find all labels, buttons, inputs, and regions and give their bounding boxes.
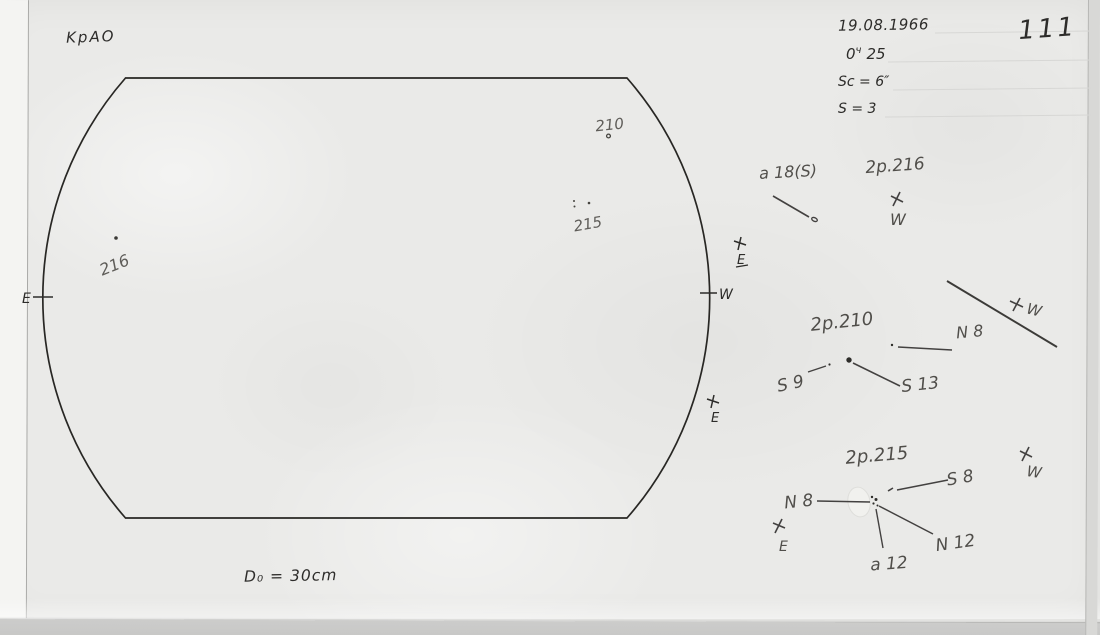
solar-drawing: KpAO 19.08.1966 0ч25 Sc = 6″ S = 3 111 E… — [0, 0, 1100, 635]
spot-group-216-label: 216 — [97, 250, 132, 279]
scanned-observation-sheet: KpAO 19.08.1966 0ч25 Sc = 6″ S = 3 111 E… — [0, 0, 1100, 635]
sketch-215-north-a-label: N 8 — [783, 491, 814, 514]
sketch-group-216: a 18(S) 2p.216 W — [759, 154, 926, 229]
sketch-group-215: 2p.215 S 8 W N 8 N 12 a 12 — [773, 443, 1044, 576]
aperture-label: D₀ = 30cm — [244, 566, 338, 586]
sketch-210-tiny-spot — [828, 363, 830, 365]
pointer-line — [876, 509, 883, 548]
sketch-215-east-label: E — [779, 539, 788, 555]
sketch-210-south-b-label: S 13 — [900, 373, 940, 397]
time-minutes: 25 — [866, 45, 885, 63]
observation-time: 0ч25 — [846, 45, 886, 63]
sketch-215-spot-dot — [872, 502, 874, 504]
spot-group-215-label: 215 — [572, 213, 603, 236]
cross-stroke — [893, 192, 900, 206]
direction-cross-icon — [773, 519, 785, 533]
sketch-210-south-a-label: S 9 — [775, 372, 806, 397]
sketch-216-west-label: W — [890, 210, 907, 229]
cross-stroke — [1022, 447, 1029, 461]
header-block: KpAO 19.08.1966 0ч25 Sc = 6″ S = 3 111 — [66, 12, 1092, 117]
pointer-line — [773, 196, 809, 217]
direction-cross-icon — [1010, 298, 1023, 311]
time-unit-superscript: ч — [856, 45, 862, 56]
observation-date: 19.08.1966 — [838, 15, 929, 35]
direction-cross-icon — [891, 192, 903, 206]
sketch-215-north-b-label: N 12 — [934, 531, 976, 556]
orientation-cross-icon — [734, 237, 746, 250]
sketch-215-spot-dot — [877, 505, 879, 507]
solar-disk: E W E E 210 215 — [22, 78, 748, 518]
sketch-216-title: 2p.216 — [865, 154, 926, 178]
sketch-215-west-label: W — [1026, 462, 1044, 482]
pointer-line — [817, 501, 870, 502]
pointer-line — [898, 347, 952, 350]
pointer-line — [897, 480, 948, 490]
guide-line — [885, 115, 1092, 117]
time-hours: 0 — [846, 45, 856, 63]
guide-line — [888, 60, 1092, 62]
seeing-value: S = 3 — [838, 101, 876, 117]
direction-cross-icon — [1020, 447, 1032, 461]
sketch-215-title: 2p.215 — [845, 443, 910, 469]
sketch-210-west-label: W — [1025, 300, 1045, 321]
guide-line — [893, 88, 1092, 90]
sketch-216-spot — [811, 217, 818, 223]
sketch-210-north-label: N 8 — [955, 321, 984, 342]
sketch-215-south-label: S 8 — [945, 466, 975, 490]
pointer-line — [879, 506, 933, 534]
page-number: 111 — [1017, 12, 1078, 46]
observatory-label: KpAO — [66, 27, 116, 47]
spot-216-dot — [114, 236, 118, 240]
sketch-215-area-label: a 12 — [870, 553, 909, 576]
sketch-210-title: 2p.210 — [809, 308, 874, 335]
spot-215-dot — [574, 206, 576, 208]
spot-210-mark — [607, 134, 611, 138]
pointer-line — [853, 363, 900, 386]
sketch-group-210: 2p.210 W N 8 S 9 S 13 — [775, 281, 1057, 397]
seeing-scale-value: Sc = 6″ — [838, 74, 890, 90]
sketch-216-area-label: a 18(S) — [759, 161, 818, 183]
pointer-line — [808, 366, 826, 372]
west-limb-label: W — [719, 287, 734, 303]
orientation-cross-icon — [707, 395, 719, 408]
sketch-215-tick — [888, 488, 893, 491]
disk-outline — [43, 78, 710, 518]
sketch-210-main-spot — [846, 357, 851, 362]
spot-215-dot — [588, 202, 591, 205]
orientation-e-lower: E — [711, 411, 720, 426]
sketch-215-spot-dot — [875, 498, 878, 501]
sketch-210-small-spot — [891, 344, 893, 346]
spot-group-210-label: 210 — [594, 115, 624, 136]
east-limb-label: E — [22, 291, 31, 307]
sketch-215-spot-dot — [871, 496, 873, 498]
spot-215-dot — [573, 200, 575, 202]
